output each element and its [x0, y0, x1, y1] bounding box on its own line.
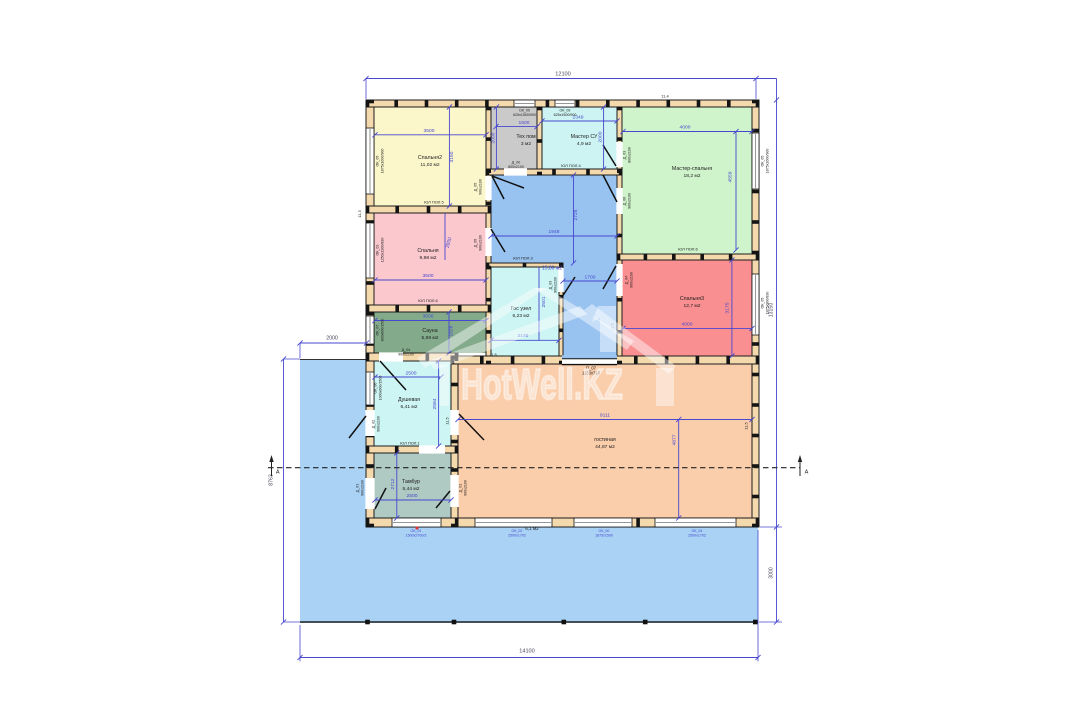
svg-text:9,98 м2: 9,98 м2: [420, 255, 437, 261]
svg-text:11,5: 11,5: [744, 421, 749, 429]
svg-text:13150: 13150: [769, 303, 775, 318]
svg-text:2501: 2501: [541, 296, 547, 307]
svg-text:3 м2: 3 м2: [521, 141, 531, 147]
svg-text:Д_05: Д_05: [474, 239, 478, 247]
svg-text:Д_02: Д_02: [372, 420, 376, 428]
svg-text:ЮЛ ПОЛ.4: ЮЛ ПОЛ.4: [561, 163, 581, 168]
svg-text:Д_03: Д_03: [549, 281, 553, 289]
svg-text:18,2 м2: 18,2 м2: [684, 173, 701, 179]
svg-text:1500: 1500: [519, 120, 530, 126]
svg-text:6,1 м2: 6,1 м2: [525, 526, 539, 531]
svg-text:1948: 1948: [549, 229, 560, 235]
svg-text:800х2100: 800х2100: [508, 165, 524, 169]
svg-text:6,41 м2: 6,41 м2: [401, 404, 418, 410]
svg-text:9111: 9111: [600, 413, 610, 419]
svg-text:900х2100: 900х2100: [398, 353, 414, 357]
svg-text:Д_05: Д_05: [474, 183, 478, 191]
svg-text:Тех пом: Тех пом: [516, 134, 536, 140]
svg-text:1500х2700/3: 1500х2700/3: [406, 534, 427, 538]
svg-text:625х1500/900: 625х1500/900: [513, 113, 536, 117]
svg-text:Мастер СУ: Мастер СУ: [571, 134, 598, 140]
svg-text:ЮЛ ПОЛ.3: ЮЛ ПОЛ.3: [513, 256, 533, 261]
svg-text:Д_04: Д_04: [625, 276, 629, 284]
svg-text:1875х1000/900: 1875х1000/900: [381, 149, 385, 174]
svg-text:2000: 2000: [597, 131, 603, 142]
svg-text:2500х1702: 2500х1702: [688, 534, 706, 538]
svg-text:1700: 1700: [585, 274, 596, 280]
svg-text:12100: 12100: [555, 72, 571, 78]
svg-text:900х2100: 900х2100: [554, 277, 558, 293]
svg-text:2500: 2500: [406, 370, 417, 376]
svg-text:900х2100: 900х2100: [628, 193, 632, 209]
svg-text:900х2100: 900х2100: [630, 272, 634, 288]
svg-text:800х2100: 800х2100: [628, 147, 632, 163]
svg-text:5,44 м2: 5,44 м2: [403, 486, 420, 492]
svg-text:гостиная: гостиная: [594, 437, 616, 443]
svg-text:2000: 2000: [326, 336, 338, 342]
svg-text:4877: 4877: [672, 434, 678, 445]
svg-text:1,8: 1,8: [491, 353, 496, 357]
svg-text:Д_01: Д_01: [459, 484, 463, 492]
svg-text:ОК_03: ОК_03: [376, 245, 380, 256]
svg-text:Тамбур: Тамбур: [402, 479, 420, 485]
svg-text:4000: 4000: [680, 125, 691, 131]
svg-text:2500х1702: 2500х1702: [508, 534, 526, 538]
svg-text:2000: 2000: [491, 132, 497, 143]
svg-text:ЮЛ ПОЛ.1: ЮЛ ПОЛ.1: [400, 441, 420, 446]
svg-text:3500: 3500: [423, 314, 434, 320]
svg-text:Спальня2: Спальня2: [418, 155, 442, 161]
svg-text:2712: 2712: [390, 478, 396, 489]
svg-text:1250х1300/830: 1250х1300/830: [381, 238, 385, 263]
svg-text:Душевая: Душевая: [398, 397, 420, 403]
svg-text:900х2100: 900х2100: [377, 416, 381, 432]
svg-text:625х1500/900: 625х1500/900: [554, 113, 577, 117]
svg-text:800х600/1500: 800х600/1500: [381, 319, 385, 342]
svg-text:ОК_05: ОК_05: [761, 298, 765, 309]
svg-text:Д_04: Д_04: [402, 348, 410, 352]
svg-text:ОК_00: ОК_00: [599, 529, 610, 533]
svg-text:900х2100: 900х2100: [464, 480, 468, 496]
svg-text:6,23 м2: 6,23 м2: [513, 313, 530, 319]
svg-text:1000х600/1500: 1000х600/1500: [379, 376, 383, 401]
svg-text:3000: 3000: [769, 567, 775, 579]
svg-text:11,4: 11,4: [661, 94, 669, 99]
svg-text:1626: 1626: [449, 325, 455, 336]
svg-text:Спальня3: Спальня3: [680, 296, 704, 302]
svg-text:ОК_01: ОК_01: [411, 529, 422, 533]
svg-text:44,87 м2: 44,87 м2: [595, 444, 615, 450]
svg-text:5,69 м2: 5,69 м2: [422, 335, 439, 341]
svg-text:900х2100: 900х2100: [479, 235, 483, 251]
svg-text:ОК_02: ОК_02: [512, 529, 523, 533]
svg-text:Д_06: Д_06: [623, 197, 627, 205]
svg-text:15,86 м2: 15,86 м2: [542, 266, 562, 272]
svg-text:Сауна: Сауна: [422, 328, 437, 334]
svg-text:11,5: 11,5: [445, 416, 450, 424]
svg-text:1875х1000/900: 1875х1000/900: [766, 149, 770, 174]
svg-text:ОК_07: ОК_07: [376, 325, 380, 336]
svg-text:ОК_04: ОК_04: [692, 529, 703, 533]
svg-text:ОК_06: ОК_06: [374, 383, 378, 394]
svg-text:Мастер-спальня: Мастер-спальня: [672, 166, 712, 172]
svg-text:ОК_00: ОК_00: [519, 109, 530, 113]
svg-text:Спальня: Спальня: [417, 248, 438, 254]
svg-text:ЮЛ ПОЛ.6: ЮЛ ПОЛ.6: [418, 298, 438, 303]
svg-text:HotWell.KZ: HotWell.KZ: [461, 361, 623, 409]
svg-text:1875х1500: 1875х1500: [595, 534, 613, 538]
svg-text:3500: 3500: [423, 273, 434, 279]
svg-text:ОК_05: ОК_05: [761, 156, 765, 167]
svg-text:12,7 м2: 12,7 м2: [684, 303, 701, 309]
svg-text:3500: 3500: [424, 128, 435, 134]
svg-text:Д_00: Д_00: [512, 161, 520, 165]
svg-text:2725: 2725: [573, 209, 579, 220]
svg-text:ОК_05: ОК_05: [376, 156, 380, 167]
svg-text:ЮЛ ПОЛ.6: ЮЛ ПОЛ.6: [678, 247, 698, 252]
svg-text:2584: 2584: [432, 398, 438, 409]
svg-text:ЮЛ ПОЛ.5: ЮЛ ПОЛ.5: [424, 200, 444, 205]
svg-text:11,02 м2: 11,02 м2: [420, 162, 440, 168]
svg-text:3150: 3150: [449, 151, 455, 162]
svg-text:900х2100: 900х2100: [479, 179, 483, 195]
svg-text:14100: 14100: [519, 649, 535, 655]
svg-text:A: A: [276, 470, 280, 476]
svg-text:11,3: 11,3: [357, 209, 362, 217]
svg-text:2500: 2500: [407, 493, 418, 499]
svg-text:Д_03: Д_03: [623, 151, 627, 159]
svg-text:900х2100: 900х2100: [361, 480, 365, 496]
svg-text:4000: 4000: [682, 322, 693, 328]
svg-text:Д_01: Д_01: [356, 484, 360, 492]
svg-text:A: A: [805, 470, 809, 476]
svg-text:4,9 м2: 4,9 м2: [577, 141, 592, 147]
svg-text:ОК_09: ОК_09: [560, 109, 571, 113]
svg-text:4559: 4559: [728, 171, 734, 182]
svg-text:3175: 3175: [725, 302, 731, 313]
